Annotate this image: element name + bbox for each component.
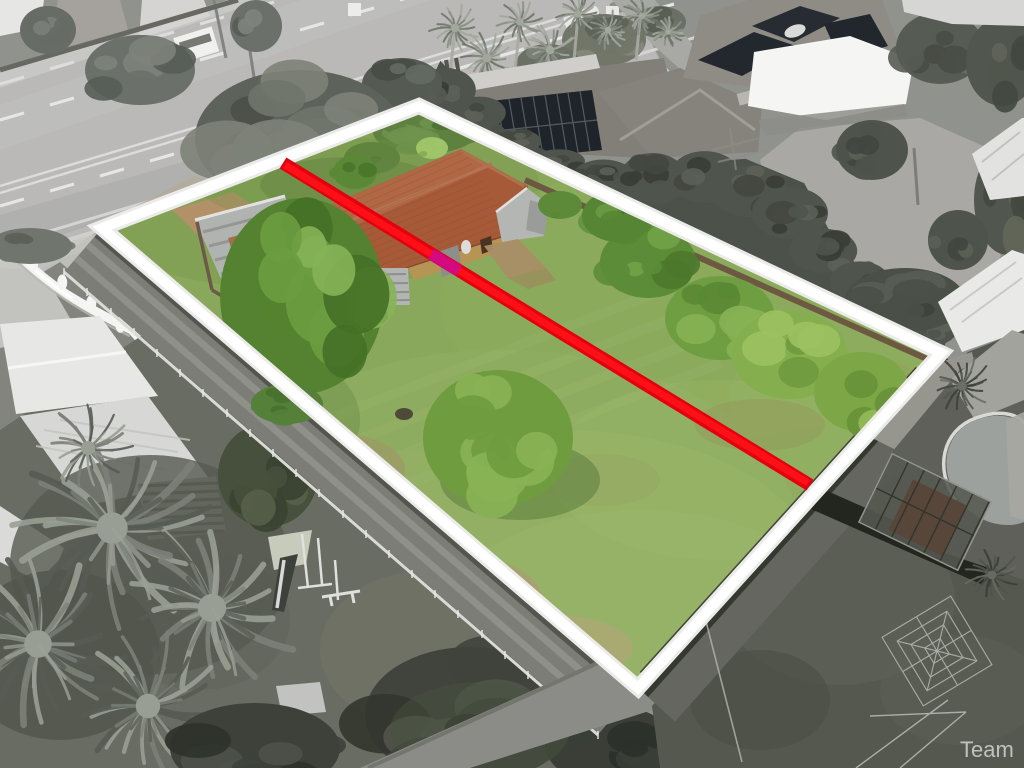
svg-text:Team: Team [960,737,1014,762]
